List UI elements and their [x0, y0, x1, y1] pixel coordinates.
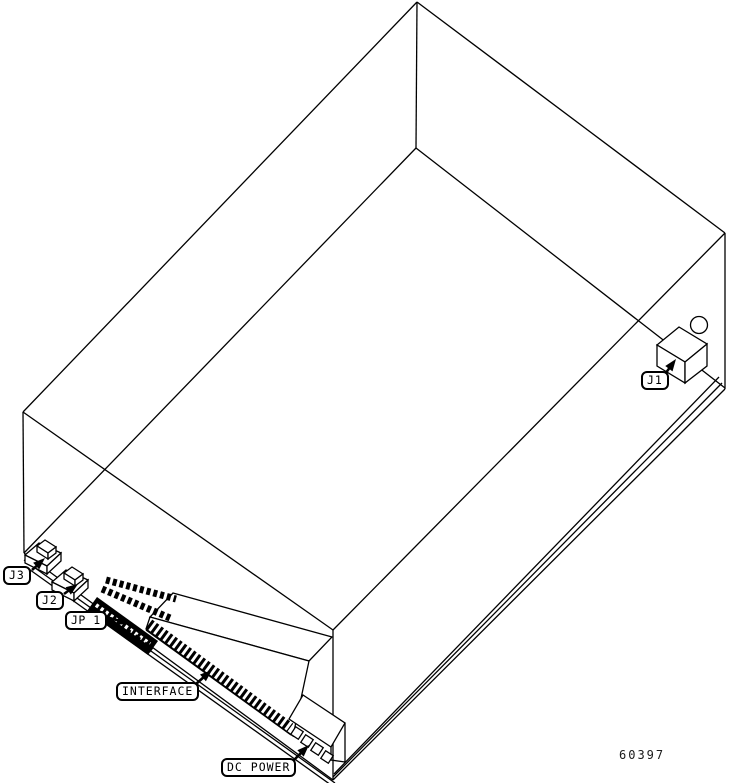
- j1-bump: [691, 317, 708, 334]
- line-art: [0, 0, 729, 783]
- label-dc-power-text: DC POWER: [227, 760, 290, 774]
- label-jp1: JP 1: [65, 611, 107, 630]
- edge-vertical-left: [23, 412, 24, 553]
- label-dc-power: DC POWER: [221, 758, 296, 777]
- label-j1-text: J1: [647, 373, 663, 387]
- label-interface: INTERFACE: [116, 682, 199, 701]
- dc-pin-2: [301, 735, 313, 747]
- pcb-edge-right-bundle: [333, 377, 725, 780]
- label-jp1-text: JP 1: [71, 613, 101, 627]
- figure-number: 60397: [619, 748, 665, 762]
- chassis-wireframe: [23, 2, 725, 783]
- dc-power-connector: [289, 695, 345, 763]
- label-j2-text: J2: [42, 593, 58, 607]
- label-j2: J2: [36, 591, 64, 610]
- label-j3-text: J3: [9, 568, 25, 582]
- label-interface-text: INTERFACE: [122, 684, 193, 698]
- label-j1: J1: [641, 371, 669, 390]
- edge-top-right: [417, 2, 725, 233]
- dc-pin-3: [311, 743, 323, 755]
- drive-isometric-diagram: J3 J2 JP 1 INTERFACE DC POWER J1 60397: [0, 0, 729, 783]
- edge-vertical-rear: [416, 2, 417, 148]
- label-j3: J3: [3, 566, 31, 585]
